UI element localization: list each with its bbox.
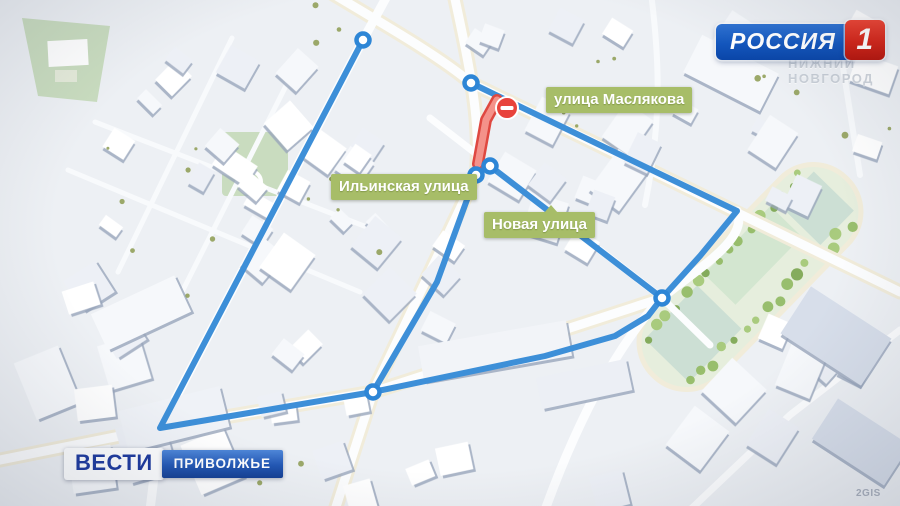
street-label-maslyakova: улица Маслякова	[546, 87, 692, 113]
program-logo-region: ПРИВОЛЖЬЕ	[162, 450, 283, 479]
route-node	[357, 34, 370, 47]
street-label-text: улица Маслякова	[554, 91, 684, 108]
tv-frame: улица Маслякова Ильинская улица Новая ул…	[0, 0, 900, 506]
no-entry-icon	[496, 97, 518, 119]
city-watermark-line2: НОВГОРОД	[788, 72, 874, 87]
street-label-text: Новая улица	[492, 216, 587, 233]
street-label-text: Ильинская улица	[339, 178, 469, 195]
map-provider-watermark: 2GIS	[856, 488, 881, 499]
channel-logo-number: 1	[845, 20, 885, 60]
program-logo-title: ВЕСТИ	[64, 448, 164, 480]
route-node	[484, 160, 497, 173]
label-pointer	[544, 205, 558, 213]
street-label-ilyinskaya: Ильинская улица	[331, 174, 477, 200]
program-logo: ВЕСТИ ПРИВОЛЖЬЕ	[64, 448, 283, 480]
route-node	[465, 77, 478, 90]
route-node	[367, 386, 380, 399]
channel-logo: РОССИЯ 1	[716, 20, 885, 60]
route-node	[656, 292, 669, 305]
channel-logo-name: РОССИЯ	[716, 24, 852, 60]
city-watermark: НИЖНИЙ НОВГОРОД	[788, 57, 874, 87]
street-label-novaya: Новая улица	[484, 212, 595, 238]
map-canvas	[0, 0, 900, 506]
